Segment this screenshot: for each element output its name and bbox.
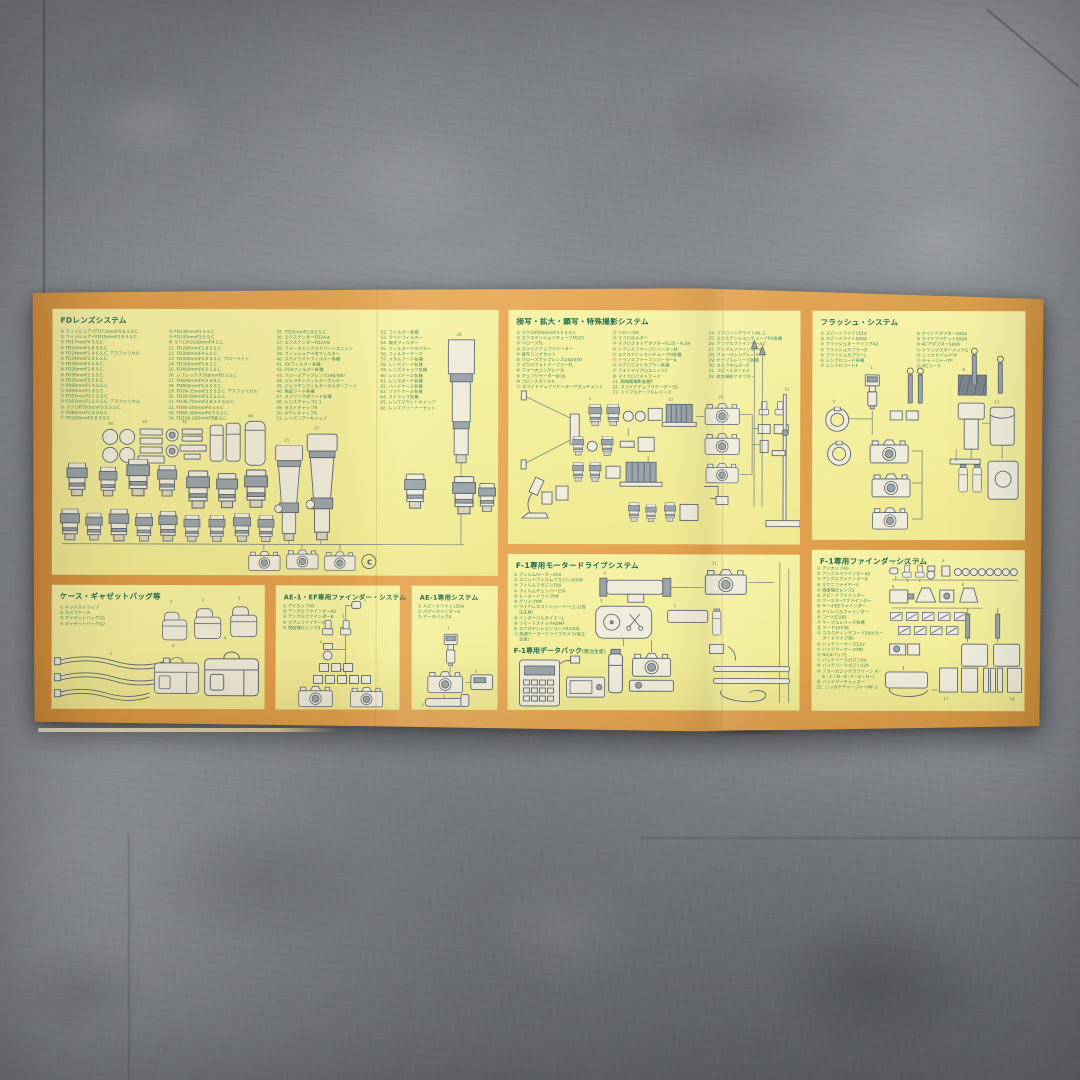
paper-edge-sliver [38, 728, 338, 732]
battery-case-icon [609, 649, 623, 692]
finder-top-row [890, 565, 1018, 579]
camera-icon [428, 672, 463, 693]
camera-back-icon [566, 677, 604, 697]
svg-text:4: 4 [320, 639, 323, 644]
finder-second-row [890, 588, 978, 603]
panel-f1-motor-drive-system: F-1専用モータードライブシステム ①フィルムローダー250②ユニットフィルムマ… [507, 554, 799, 711]
battery-case-box [962, 644, 988, 666]
camera-icon [299, 686, 333, 706]
battery-cylinder-icon [959, 465, 968, 492]
flash-item-numbers: 13 811 [832, 365, 1000, 404]
floor-grout-line-left [43, 0, 45, 294]
svg-text:25: 25 [284, 437, 290, 442]
svg-text:1: 1 [674, 602, 677, 607]
fold-kink-shadow [690, 730, 810, 744]
fd-camera-row: c [249, 550, 376, 571]
list-item: ⑲フォーカシングスクリーン A・B・C・D・E・F・G・H・I [817, 668, 887, 679]
fd-lens-row-a [67, 459, 268, 509]
fd-pouches-and-case [210, 421, 265, 465]
fd-telephoto-lens-2 [453, 477, 476, 514]
gadget-bag-icon [154, 657, 198, 693]
fd-list-col1: ①フィッシュアイFD7.5mmF5.6 S.S.C.②フィッシュアイFD15mm… [60, 329, 165, 421]
list-item: ④ギャゼットバッグG2 [60, 621, 159, 627]
camera-case-icon [195, 609, 221, 639]
panel-ae1-ef-finder-system: AE-1・EF専用ファインダー・システム ①アイカップ4S②アングルファインダー… [275, 585, 399, 709]
cases-illustration: 22 23 41 [51, 585, 264, 710]
panel-cases-bags: ケース・ギャゼットバッグ等 ①ネックストラップ②カメラケース③ギャゼットバッグG… [51, 585, 264, 710]
ae1-connector-lines [444, 667, 471, 699]
list-item: 51.レンズリアーキャップ [276, 416, 376, 422]
macro-tubes-bottom [628, 486, 728, 522]
svg-text:20: 20 [718, 394, 724, 399]
floor-grout-line-bottom-left [128, 834, 130, 1080]
camera-icon [705, 570, 746, 595]
battery-cylinder-icon [973, 465, 982, 492]
brochure-paper: FDレンズシステム ①フィッシュアイFD7.5mmF5.6 S.S.C.②フィッ… [31, 287, 1043, 733]
camera-icon [325, 552, 355, 570]
ae1ef-list: ①アイカップ4S②アングルファインダーA2③アングルファインダーB④マグニファイ… [283, 603, 356, 630]
svg-text:2: 2 [238, 595, 241, 600]
data-back-icon [471, 675, 493, 690]
list-item: ⑬コネクティングコード500(モータードライブ用) [817, 631, 887, 642]
f1-databack-subtitle: F-1専用データバック(受注生産) [514, 646, 606, 656]
fd-telephoto-lens [405, 474, 426, 508]
floor-grout-line-bottom-right [640, 837, 1080, 839]
panel-title: FDレンズシステム [60, 315, 126, 326]
macro-tubes-row1 [589, 404, 663, 426]
panel-fd-lens-system: FDレンズシステム ①フィッシュアイFD7.5mmF5.6 S.S.C.②フィッ… [52, 309, 499, 576]
svg-text:11: 11 [712, 560, 718, 565]
ae1-list: ①スピードライト155A②パワーワインダーA③データバックA [418, 604, 494, 620]
fd-connector-lines [62, 461, 464, 551]
microscope-icon [522, 477, 552, 518]
f1finder-item-numbers: 12 35 68 1718 [892, 558, 1016, 701]
camera-icon [705, 404, 739, 425]
panel-title: 接写・拡大・顕写・特殊撮影システム [516, 316, 648, 327]
fd-500mm-lens [275, 445, 303, 540]
svg-text:27: 27 [314, 425, 320, 430]
macro-tubes-row3 [572, 462, 620, 481]
flash-list-col1: ①スピードライト155A②スピードライト500A③フラッシュオートリングA2④フ… [820, 331, 912, 369]
focusing-screens [890, 612, 966, 634]
camera-icon [350, 687, 382, 707]
panel-flash-system: フラッシュ・システム ①スピードライト155A②スピードライト500A③フラッシ… [812, 311, 1026, 541]
list-item: 21.ニッカドチャージャーMF-2 [817, 685, 887, 691]
list-item: ⑭DCコード [916, 363, 1015, 369]
film-magazine-250 [596, 606, 652, 638]
camera-icon [706, 463, 738, 483]
list-item: ⑤視度補正レンズS [283, 625, 356, 631]
panel-title: AE-1専用システム [420, 592, 479, 602]
svg-text:3: 3 [172, 643, 175, 648]
macro-tubes-row2 [572, 436, 654, 456]
svg-text:40: 40 [108, 421, 114, 426]
camera-cases [163, 607, 257, 641]
microscope-adapter [556, 486, 568, 500]
panel-macro-system: 接写・拡大・顕写・特殊撮影システム ①マクロFD50mmF3.5 S.S.C.②… [508, 310, 801, 545]
svg-text:17: 17 [943, 696, 949, 701]
macro-list-col3: 24.マクロリングライトML-125.エクステンションチューブFD各種26.アン… [708, 330, 795, 379]
camera-icon [633, 653, 671, 676]
list-item: ③データバックA [418, 614, 494, 620]
camera-with-motor [630, 653, 674, 691]
f1-databack-unit [519, 656, 579, 706]
motor-drive-unit [600, 578, 671, 602]
list-item: 32.拡大撮影アダプター [708, 374, 795, 380]
macro-angle-finders [758, 402, 788, 453]
power-winder-icon [425, 694, 469, 706]
servo-ee-finder-side [890, 644, 920, 655]
svg-text:2: 2 [170, 599, 173, 604]
flash-auto-rings [826, 407, 851, 466]
cords [966, 614, 1000, 638]
cases-list: ①ネックストラップ②カメラケース③ギャゼットバッグG1④ギャゼットバッグG2 [60, 605, 159, 627]
list-item: 34.FD100-200mmF5.6 S.C. [168, 415, 272, 421]
svg-text:3: 3 [832, 399, 835, 404]
flash-camera-stack [870, 440, 910, 529]
panel-f1-finder-system: F-1専用ファインダーシステム ①アイカップ4S②アングルファインダーA2③アン… [811, 550, 1024, 712]
sync-cords [907, 368, 923, 403]
camera-icon [870, 440, 908, 463]
slide-duplicator [521, 391, 579, 469]
list-item: ⑪高速モータードライブカメラ(受注生産) [514, 631, 588, 642]
camera-back-door [668, 610, 708, 622]
flash-list-col2: ⑧ワイドアダプター500A⑨サイドブラケット500A⑩ACアダプター500A⑪ト… [916, 331, 1015, 369]
f1finder-list: ①アイカップ4S②アングルファインダーA2③アングルファインダーB④マグニファイ… [817, 566, 887, 690]
macro-list-col2: ⑫ベローズM⑬マクロホルダー⑭マクロフォトアダプターFL35・FL34⑮トランス… [612, 330, 705, 395]
floor-grout-line-top-right [986, 9, 1079, 88]
fd-list-col4: 52.フィルター各種53.ワイドフィルター54.偏光フィルター55.フィルターア… [380, 330, 444, 411]
list-item: 23.トリプルケーブルレリーズ [612, 390, 704, 396]
svg-text:5: 5 [942, 558, 945, 563]
list-item: ⑰FD100mmF2.8 S.S.C. [60, 415, 164, 421]
svg-text:1: 1 [110, 651, 113, 656]
svg-text:18: 18 [1009, 696, 1015, 701]
gadget-bag-icon [205, 652, 259, 696]
svg-text:4: 4 [224, 635, 227, 640]
fd-filters-and-caps [103, 429, 207, 463]
speedlite-icon [865, 375, 879, 409]
svg-text:28: 28 [456, 332, 462, 337]
flash-couplers [890, 411, 918, 420]
svg-text:2: 2 [421, 702, 424, 707]
fd-telephoto-lens-3 [478, 483, 495, 511]
f1finder-connector-lines [892, 576, 1018, 690]
svg-text:2: 2 [202, 597, 205, 602]
ring-light-icon [828, 441, 851, 466]
gadget-bags [154, 652, 258, 696]
speedlite-500a [950, 403, 984, 464]
camera-icon [872, 474, 910, 497]
panel-title: ケース・ギャゼットバッグ等 [60, 591, 161, 602]
ring-light-icon [826, 407, 849, 432]
fd-super-telephoto-lenses [275, 434, 338, 541]
list-item: ⑦シンクロコードF [820, 363, 912, 369]
brochure: FDレンズシステム ①フィッシュアイFD7.5mmF5.6 S.S.C.②フィッ… [32, 288, 1043, 731]
speedlite-icon [444, 634, 457, 666]
f1motor-list: ①フィルムローダー250②ユニットフィルムマガジン250用③フィルムマガジン25… [514, 572, 588, 642]
charger-and-batteries [886, 668, 1022, 697]
list-item: ⑪スライドデュプリケーターアタッチメント [516, 384, 608, 390]
svg-text:3: 3 [475, 669, 478, 674]
c-mark: c [367, 558, 372, 568]
panel-title: フラッシュ・システム [820, 317, 898, 328]
list-item: ⑦ワイヤレスコントローラーLC-1(受注生産) [514, 604, 588, 615]
bellows-unit-2 [620, 462, 662, 486]
panel-title: F-1専用モータードライブシステム [516, 560, 639, 571]
f1motor-connector-lines [623, 562, 788, 702]
camera-icon [287, 550, 318, 569]
fd-list-col3: 35.TS35mmF2.8 S.S.C.36.エクステンダーFD2X-A37.エ… [276, 329, 377, 421]
wide-adapter-hatched [958, 375, 986, 395]
svg-text:11: 11 [994, 399, 1000, 404]
svg-text:3: 3 [600, 598, 603, 603]
flash-power-packs [959, 348, 1019, 499]
svg-text:6: 6 [892, 584, 895, 589]
fd-600mm-lens [306, 434, 337, 540]
panel-ae1-system: AE-1専用システム ①スピードライト155A②パワーワインダーA③データバック… [411, 586, 497, 710]
fd-lens-row-b [60, 509, 274, 542]
camera-icon [249, 551, 280, 570]
panel-title: AE-1・EF専用ファインダー・システム [284, 591, 406, 601]
dioptric-lenses [314, 663, 371, 683]
neck-straps [54, 657, 169, 701]
remote-accessories [709, 608, 789, 701]
camera-case-icon [231, 607, 257, 637]
photo-scene: { "colors": { "floor_gray": "#8a8d91", "… [0, 0, 1080, 1080]
magnifier-icon [323, 643, 333, 660]
list-item: 66.レンズクリーナーセット [380, 405, 443, 411]
svg-text:1: 1 [447, 625, 450, 630]
svg-text:8: 8 [962, 582, 965, 587]
svg-text:31: 31 [784, 387, 790, 392]
booster-battery-box [994, 644, 1020, 666]
flash-connector-lines [848, 411, 1002, 519]
camera-case-icon [163, 612, 187, 640]
macro-list-col1: ①マクロFD50mmF3.5 S.S.C.②エクステンションチューブFD25③ベ… [516, 330, 609, 390]
bellows-unit-1 [662, 404, 696, 426]
camera-icon [705, 434, 739, 455]
macro-connector-lines [628, 414, 764, 474]
svg-text:3: 3 [588, 396, 591, 401]
fd-list-col2: ⑱FD135mmF2.5 S.C.⑲FD135mmF3.5 S.C.⑳マクロFD… [168, 329, 273, 421]
ae1-item-numbers: 132 [421, 625, 478, 707]
svg-text:12: 12 [668, 396, 674, 401]
macro-camera-stack [705, 404, 739, 483]
camera-icon [872, 508, 907, 529]
fd-800mm-lens [448, 340, 474, 463]
